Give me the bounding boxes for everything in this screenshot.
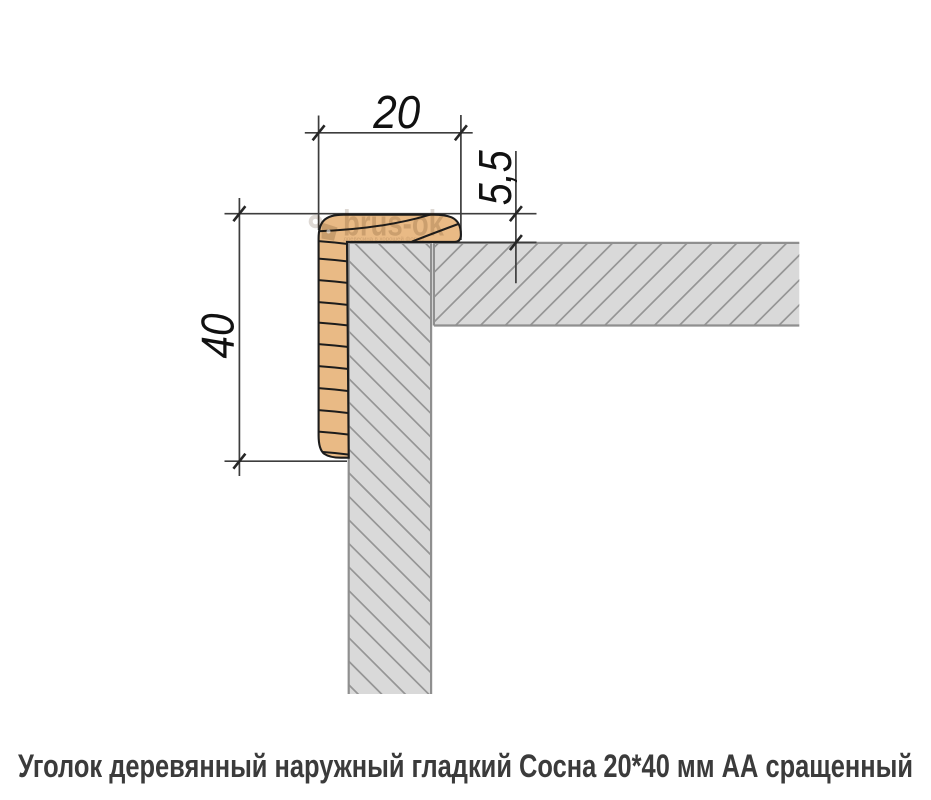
svg-text:древесина в хорошей форме: древесина в хорошей форме bbox=[344, 236, 425, 243]
svg-text:5,5: 5,5 bbox=[469, 150, 521, 205]
svg-text:20: 20 bbox=[372, 86, 420, 138]
svg-text:40: 40 bbox=[192, 313, 244, 358]
svg-text:Уголок деревянный наружный гла: Уголок деревянный наружный гладкий Сосна… bbox=[18, 748, 913, 784]
